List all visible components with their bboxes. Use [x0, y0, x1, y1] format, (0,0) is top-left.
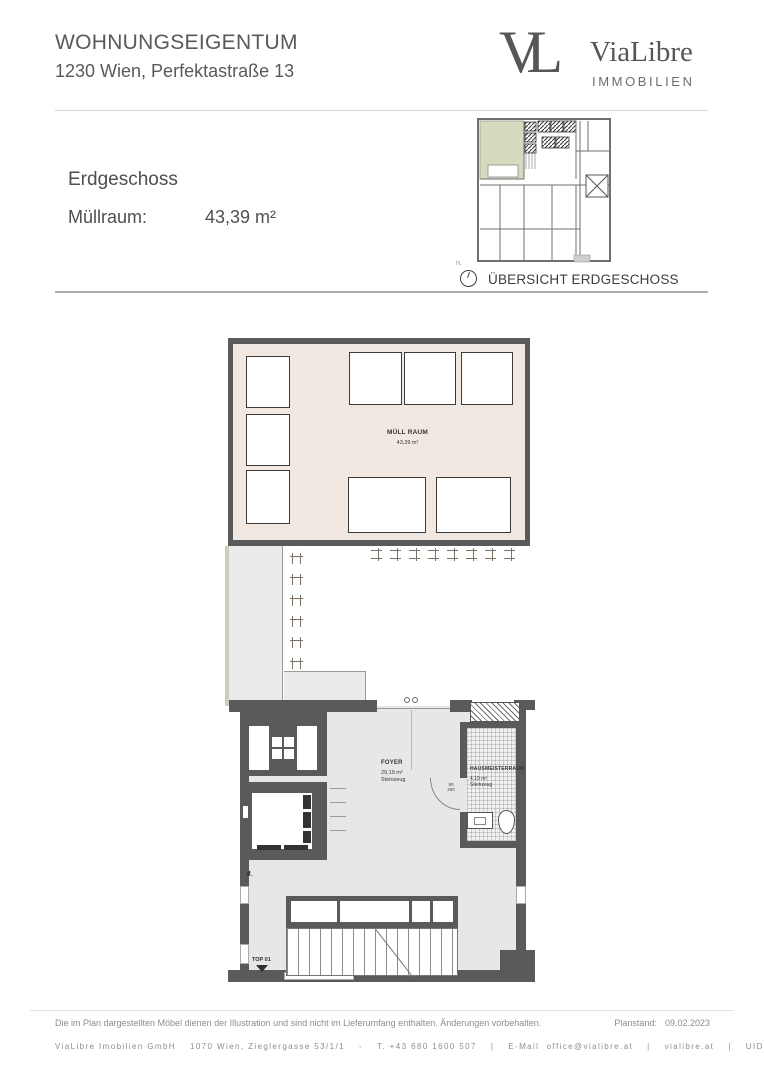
door-marker-icon	[412, 697, 418, 703]
overview-caption: ÜBERSICHT ERDGESCHOSS	[488, 272, 679, 287]
bike-rack-icon	[292, 637, 301, 648]
waste-container	[436, 477, 511, 533]
elevator-door	[284, 845, 308, 850]
muellraum-area: 43,39 m²	[360, 440, 455, 447]
footer-divider	[30, 1010, 734, 1011]
footer-separator: |	[647, 1042, 650, 1051]
mailbox	[291, 901, 337, 922]
shaft-box	[284, 737, 294, 747]
bike-rack-icon	[292, 616, 301, 627]
mailbox	[433, 901, 453, 922]
foyer-area: 29,19 m²	[381, 770, 405, 777]
bike-rack-icon	[292, 658, 301, 669]
wall	[525, 338, 530, 546]
bike-rack-icon	[485, 550, 496, 559]
waste-container	[404, 352, 456, 405]
ramp-tick	[330, 830, 346, 831]
foyer-name: FOYER	[381, 760, 403, 766]
entrance-axis-line	[411, 710, 412, 770]
page-subtitle: 1230 Wien, Perfektastraße 13	[55, 61, 294, 82]
elevator-panel	[303, 831, 311, 843]
hausmeisterraum-label: HAUSMEISTERRAUM 4,19 m² Steinzeug	[470, 756, 524, 789]
door-width: 80	[448, 782, 453, 787]
bike-rack-icon	[428, 550, 439, 559]
hausmeisterraum-name: HAUSMEISTERRAUM	[470, 766, 524, 772]
wall	[228, 338, 233, 546]
plan-date-label: Planstand:	[614, 1018, 657, 1028]
elevator-panel	[303, 812, 311, 828]
waste-container	[246, 414, 290, 466]
overview-divider	[55, 291, 708, 293]
wall	[450, 700, 472, 712]
bike-rack-icon	[466, 550, 477, 559]
unit-label: TOP 01	[252, 957, 271, 964]
vialibre-logo-name: ViaLibre	[590, 38, 693, 67]
footer-contact-line: ViaLibre Imobilien GmbH 1070 Wien, Ziegl…	[55, 1042, 764, 1051]
waste-container	[349, 352, 402, 405]
shaft-box	[284, 749, 294, 759]
ramp-tick	[330, 802, 346, 803]
bike-rack-icon	[292, 574, 301, 585]
hydrant-icon: ⚑	[244, 869, 256, 878]
bike-rack-icon	[409, 550, 420, 559]
footer-email-label: E-Mail	[508, 1042, 539, 1051]
footer-uid: UID ATU77818435	[746, 1042, 764, 1051]
door-height: 200	[447, 787, 455, 792]
page-title: WOHNUNGSEIGENTUM	[55, 31, 298, 55]
footer-separator: |	[491, 1042, 494, 1051]
bike-rack-icon	[292, 595, 301, 606]
entrance-arrow-icon	[256, 965, 268, 972]
compass-north-label: N.	[456, 261, 462, 267]
vialibre-logo-monogram-icon: VL	[499, 22, 547, 82]
bike-rack-icon	[390, 550, 401, 559]
ramp-tick	[330, 788, 346, 789]
footer-email: E-Mail office@vialibre.at	[508, 1042, 633, 1051]
footer-address: 1070 Wien, Zieglergasse 53/1/1	[190, 1042, 345, 1051]
wall	[460, 722, 467, 778]
compass-needle	[467, 272, 470, 278]
shaft-hatch	[470, 702, 520, 722]
foyer-label: FOYER 29,19 m² Steinzeug	[381, 750, 405, 784]
shaft-box	[297, 726, 317, 770]
door-marker-icon	[404, 697, 410, 703]
elevator-jamb	[243, 806, 248, 818]
bike-rack-icon	[504, 550, 515, 559]
waste-container	[348, 477, 426, 533]
elevator-door	[257, 845, 281, 850]
waste-container	[246, 470, 290, 524]
floorplan-page: WOHNUNGSEIGENTUM 1230 Wien, Perfektastra…	[0, 0, 764, 1080]
wall	[228, 338, 530, 344]
footer-separator: -	[359, 1042, 363, 1051]
foyer-finish: Steinzeug	[381, 777, 405, 784]
compass-icon	[460, 270, 477, 287]
muellraum-name: MÜLL RAUM	[387, 429, 428, 436]
outdoor-path	[229, 546, 283, 706]
window	[516, 886, 526, 904]
muellraum-label: MÜLL RAUM 43,39 m²	[360, 420, 455, 447]
room-area-value: 43,39 m²	[205, 207, 276, 228]
bike-rack-icon	[292, 553, 301, 564]
wall	[516, 706, 526, 956]
entrance-threshold	[377, 708, 450, 709]
footer-company: ViaLibre Imobilien GmbH	[55, 1042, 176, 1051]
elevator-panel	[303, 795, 311, 809]
shaft-box	[272, 749, 282, 759]
bike-rack-icon	[371, 550, 382, 559]
wall	[460, 841, 526, 848]
mailbox	[412, 901, 430, 922]
mailbox	[340, 901, 409, 922]
waste-container	[461, 352, 513, 405]
staircase	[286, 928, 458, 976]
vialibre-logo-tagline: IMMOBILIEN	[592, 74, 695, 89]
bike-rack-icon	[447, 550, 458, 559]
footer-phone: T. +43 680 1600 507	[377, 1042, 477, 1051]
window	[240, 886, 249, 904]
window	[240, 944, 249, 964]
footer-website: vialibre.at	[665, 1042, 715, 1051]
header-divider	[55, 110, 708, 111]
sink-basin	[474, 817, 486, 825]
footer-disclaimer: Die im Plan dargestellten Möbel dienen d…	[55, 1018, 541, 1028]
plan-date: Planstand:09.02.2023	[614, 1018, 710, 1028]
room-label: Müllraum:	[68, 207, 147, 228]
floor-title: Erdgeschoss	[68, 169, 178, 191]
shaft-box	[249, 726, 269, 770]
sink-icon	[467, 812, 493, 829]
waste-container	[246, 356, 290, 408]
wall	[500, 950, 535, 982]
ramp-tick	[330, 816, 346, 817]
footer-separator: |	[728, 1042, 731, 1051]
hausmeisterraum-finish: Steinzeug	[470, 782, 524, 788]
plan-date-value: 09.02.2023	[665, 1018, 710, 1028]
door-size-label: 80 200	[444, 782, 458, 793]
shaft-box	[272, 737, 282, 747]
footer-email-value: office@vialibre.at	[547, 1042, 634, 1051]
overview-map	[476, 117, 614, 264]
